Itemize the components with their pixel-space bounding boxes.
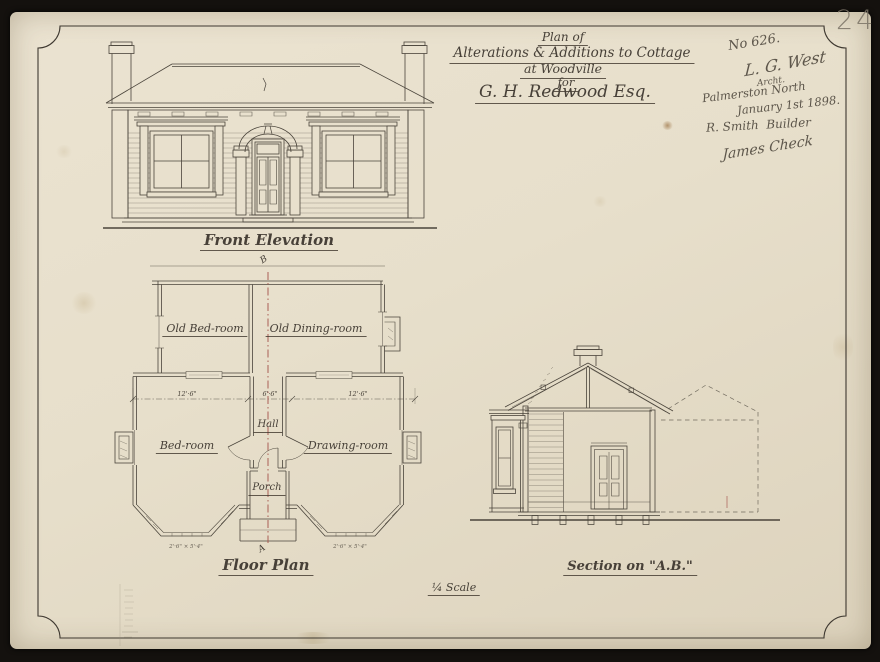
scale-caption: ¼ Scale (428, 582, 480, 596)
section-drawing (470, 346, 780, 525)
chimney-right (402, 42, 427, 218)
entrance-door (233, 124, 303, 222)
bay-dimension-right: 2'·6" × 5'·4" (333, 545, 367, 551)
eave-annotation-scribble (528, 367, 553, 404)
section-door (591, 443, 627, 509)
hipped-roof (106, 64, 434, 108)
room-label-bedroom: Bed-room (156, 440, 218, 454)
chimney-left (109, 42, 134, 218)
floor-plan-caption: Floor Plan (218, 558, 313, 576)
room-label-hall: Hall (253, 420, 282, 433)
room-label-old-dining: Old Dining-room (266, 323, 367, 337)
window-right (306, 117, 400, 197)
section-roof (505, 363, 673, 414)
dimension-hall: 6'·6" (262, 391, 277, 398)
dimension-left: 12'·6" (177, 391, 196, 398)
dimension-right: 12'·6" (348, 391, 367, 398)
front-elevation-caption: Front Elevation (200, 233, 338, 251)
front-elevation-drawing (103, 42, 437, 228)
room-label-porch: Porch (248, 483, 285, 496)
scanned-architectural-drawing: 24 Plan of Alterations & Additions to Co… (0, 0, 880, 662)
section-caption: Section on "A.B." (563, 560, 697, 576)
title-line-1: Plan of (538, 31, 588, 46)
old-building-dashed-outline (661, 385, 758, 512)
pencil-calculations (120, 584, 138, 646)
bay-dimension-left: 2'·6" × 5'·4" (169, 545, 203, 551)
title-client-name: G. H. Redwood Esq. (475, 84, 655, 104)
archive-page-number: 24 (836, 5, 876, 36)
floor-plan-drawing (115, 266, 421, 543)
room-label-drawingroom: Drawing-room (304, 440, 392, 454)
room-label-old-bedroom: Old Bed-room (162, 323, 247, 337)
window-left (134, 117, 228, 197)
